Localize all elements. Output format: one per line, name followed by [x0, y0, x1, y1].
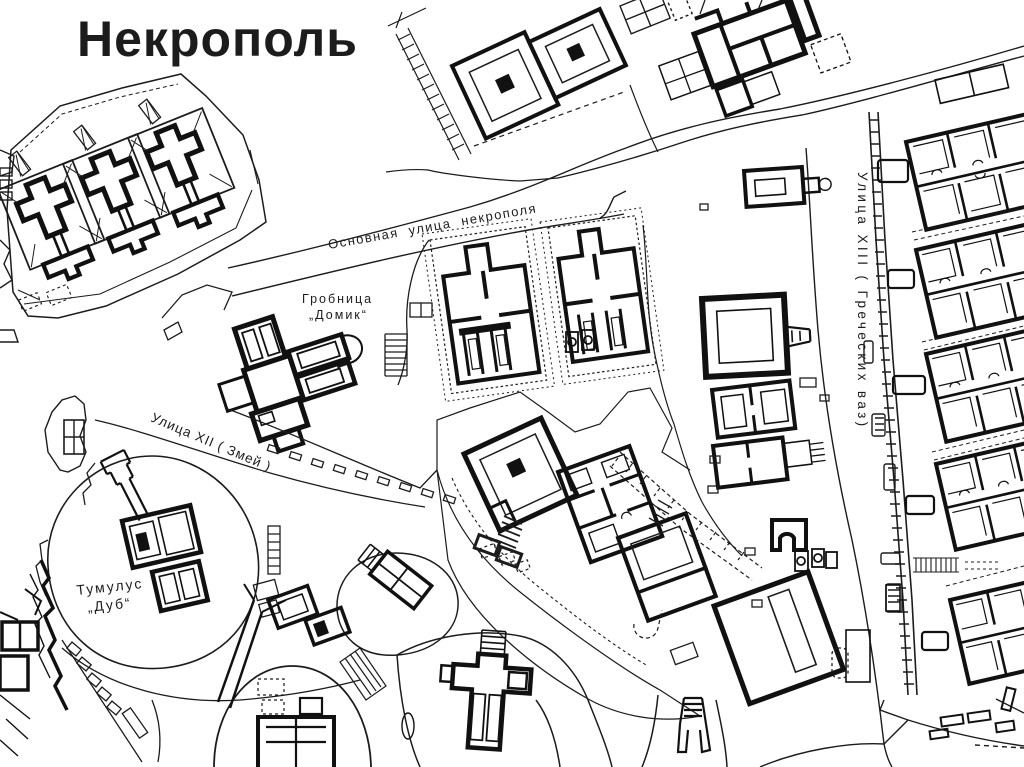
svg-text:Гробница: Гробница	[302, 292, 373, 306]
svg-text:„Домик“: „Домик“	[309, 308, 368, 322]
svg-text:Некрополь: Некрополь	[77, 11, 358, 67]
svg-text:Улица XIII ( Греческих ваз): Улица XIII ( Греческих ваз)	[855, 172, 870, 430]
